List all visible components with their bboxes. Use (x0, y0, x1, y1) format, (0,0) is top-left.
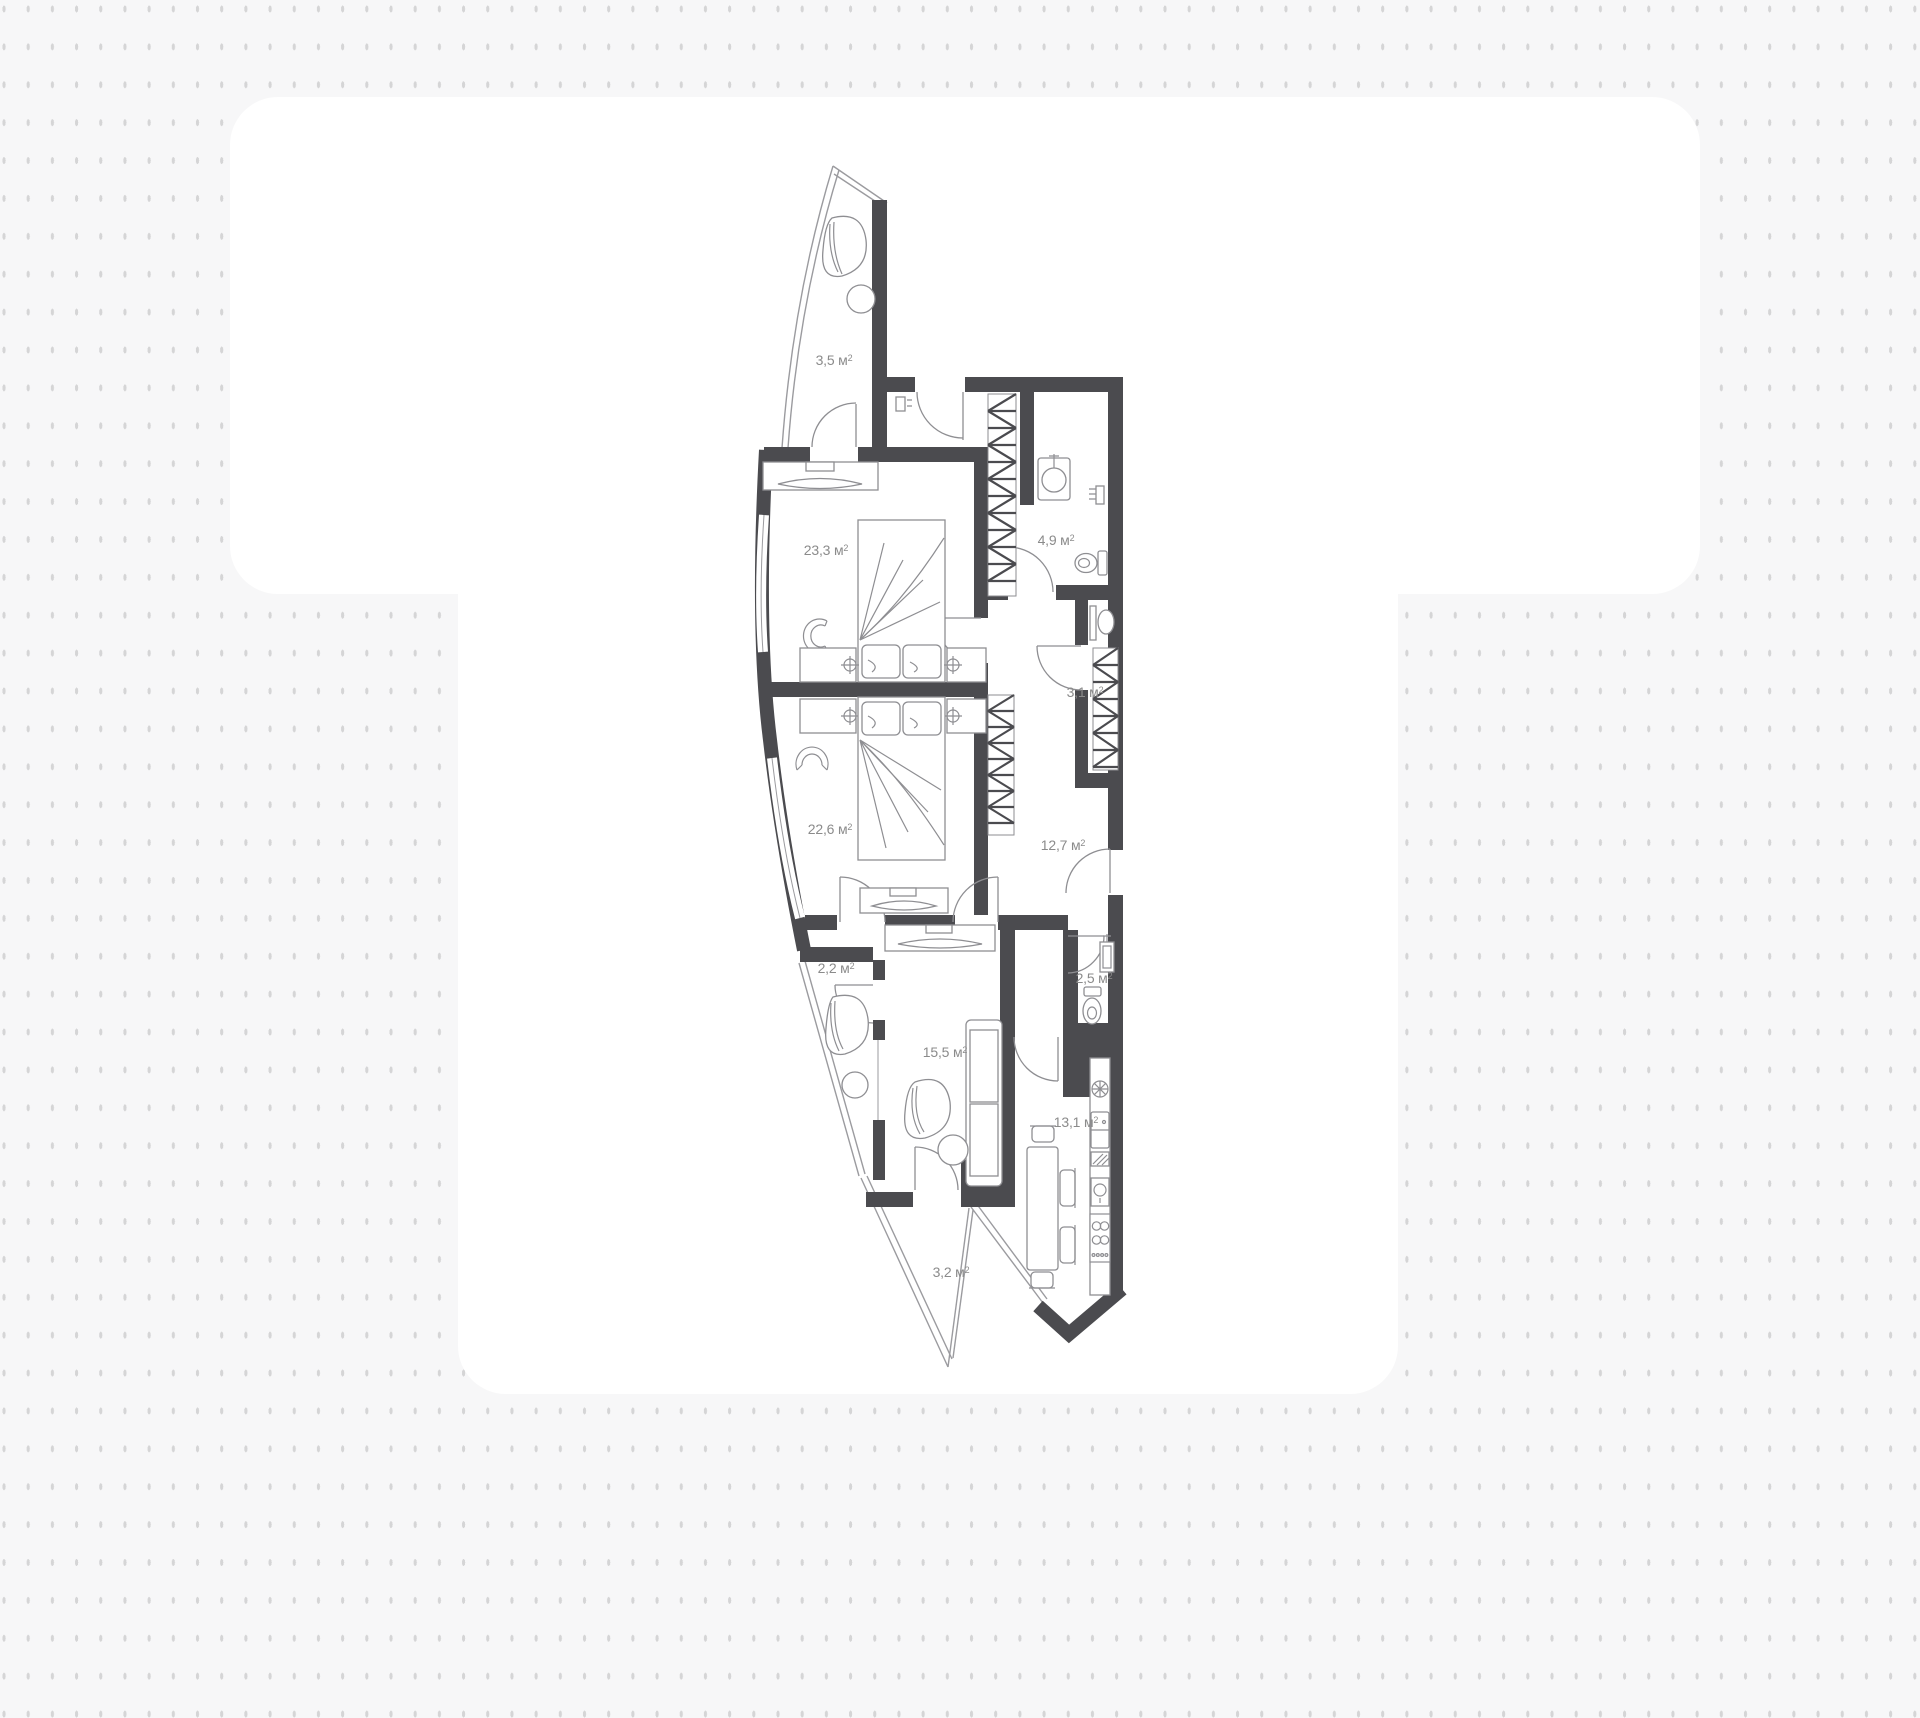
balcony-chair-icon (826, 995, 869, 1054)
fridge-icon (1091, 1112, 1109, 1148)
balcony-table-icon (847, 285, 875, 313)
kitchen-bottom-wall (1038, 1289, 1122, 1334)
armchair-icon (905, 1080, 951, 1139)
toilet-icon (1083, 987, 1101, 1024)
balcony-table-icon (842, 1072, 868, 1098)
extractor-icon (1092, 1081, 1108, 1097)
dining-table-icon (1027, 1126, 1075, 1288)
stove-icon (1090, 1214, 1110, 1262)
entrance-door-icon (917, 392, 963, 440)
floor-plan (700, 130, 1180, 1400)
tv-dresser-icon (763, 462, 878, 490)
sofa-icon (966, 1020, 1002, 1186)
inter-bedroom-wall (766, 682, 988, 697)
balcony-top-door-icon (812, 403, 856, 447)
bed-icon (858, 520, 945, 682)
towel-dryer-icon (1089, 486, 1104, 504)
sink-icon (1091, 1178, 1109, 1206)
tv-dresser-icon (860, 888, 948, 913)
balcony-right-wall (872, 200, 887, 462)
pouf-icon (938, 1135, 968, 1165)
right-outer-wall (1108, 392, 1123, 600)
bed-icon (858, 697, 945, 860)
sink-icon (1038, 454, 1070, 500)
armchair-icon (796, 747, 828, 770)
dishwasher-icon (1091, 1152, 1109, 1166)
intercom-icon (896, 397, 912, 411)
hall-right-door-icon (1066, 849, 1110, 893)
closet-door-icon (1037, 646, 1081, 690)
balcony-chair-icon (823, 216, 867, 276)
kitchen-door-icon (1014, 1037, 1058, 1081)
toilet-icon (1075, 551, 1107, 575)
tv-dresser-icon (885, 925, 995, 951)
